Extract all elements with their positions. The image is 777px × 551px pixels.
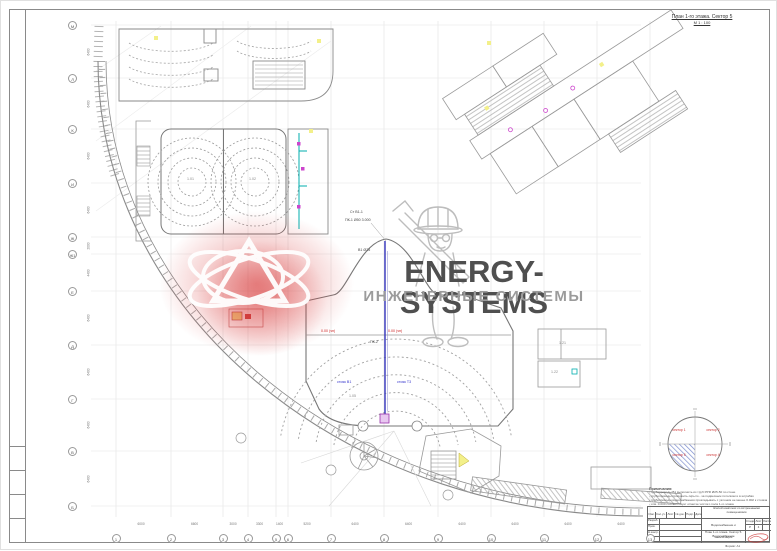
dim-label-bottom: 6400 bbox=[352, 522, 359, 526]
annotation-label: ПК-1 Ø50 3.000 bbox=[345, 218, 371, 222]
axis-bubble-left: Б bbox=[68, 502, 77, 511]
sheet-name: План 1-го этажа. Сектор 5. Водоснабжение bbox=[702, 531, 746, 543]
axis-bubble-bottom: 10 bbox=[487, 534, 496, 543]
sheet-scale: М 1 : 100 bbox=[637, 20, 767, 25]
dim-label-left: 6400 bbox=[87, 100, 91, 107]
axis-bubble-bottom: 7 bbox=[327, 534, 336, 543]
axis-bubble-bottom: 12 bbox=[593, 534, 602, 543]
dim-label-bottom: 6600 bbox=[191, 522, 198, 526]
dim-label-left: 6400 bbox=[87, 368, 91, 375]
dim-label-left: 6400 bbox=[87, 48, 91, 55]
axis-bubble-bottom: 8 bbox=[380, 534, 389, 543]
project-line2: помещениями bbox=[702, 511, 771, 515]
axis-bubble-bottom: 9 bbox=[434, 534, 443, 543]
dim-label-bottom: 6400 bbox=[512, 522, 519, 526]
dim-label-bottom: 6400 bbox=[565, 522, 572, 526]
axis-bubble-bottom: 6 bbox=[284, 534, 293, 543]
sector-label-5: сектор 5 bbox=[664, 453, 694, 457]
annotation-label: стояк В1 bbox=[337, 380, 351, 384]
axis-bubble-bottom: 13 bbox=[646, 534, 655, 543]
annotation-label: 1.02 bbox=[249, 177, 256, 181]
dim-label-bottom: 5200 bbox=[304, 522, 311, 526]
sector-label-1: сектор 1 bbox=[664, 428, 694, 432]
title-block-right: Жилой комплекс со встроенными помещениям… bbox=[702, 507, 771, 543]
red-stamp-icon bbox=[746, 532, 771, 544]
dim-label-bottom: 6400 bbox=[618, 522, 625, 526]
col-list: Лист bbox=[667, 512, 675, 518]
notes-block: Примечания: - трубопроводы В1 выполнить … bbox=[649, 487, 767, 506]
axis-bubble-left: Е bbox=[68, 287, 77, 296]
axis-bubble-left: В bbox=[68, 447, 77, 456]
col-ndok: № док. bbox=[675, 512, 686, 518]
annotation-label: 1.05 bbox=[349, 394, 356, 398]
col-data: Дата bbox=[695, 512, 702, 518]
col-podp: Подп. bbox=[686, 512, 695, 518]
axis-bubble-left: Ж bbox=[68, 233, 77, 242]
dim-label-left: 6400 bbox=[87, 475, 91, 482]
annotation-label: В1 Ø25 bbox=[358, 248, 370, 252]
axis-bubble-left: Ж1 bbox=[68, 250, 77, 259]
axis-bubble-bottom: 1 bbox=[112, 534, 121, 543]
sheet-name-line2: Водоснабжение bbox=[702, 535, 745, 539]
axis-bubble-bottom: 5 bbox=[272, 534, 281, 543]
axis-bubble-left: И bbox=[68, 179, 77, 188]
drawing-sheet: ENERGY-SYSTEMS ИНЖЕНЕРНЫЕ СИСТЕМЫ План 1… bbox=[0, 0, 777, 550]
dim-label-left: 6400 bbox=[87, 206, 91, 213]
sector-label-4: сектор 4 bbox=[698, 453, 728, 457]
annotation-label: 1.22 bbox=[551, 370, 558, 374]
watermark-subtitle: ИНЖЕНЕРНЫЕ СИСТЕМЫ bbox=[361, 289, 587, 304]
notes-list: - трубопроводы В1 выполнить из труб PPR … bbox=[649, 491, 767, 506]
sector-label-2: сектор 2 bbox=[698, 428, 728, 432]
title-block: Изм. Кол.уч. Лист № док. Подп. Дата Разр… bbox=[647, 506, 770, 542]
annotation-label: 1.01 bbox=[187, 177, 194, 181]
annotation-label: 0.00 (чп) bbox=[321, 329, 335, 333]
annotation-label: 0.00 (чп) bbox=[388, 329, 402, 333]
dim-label-bottom: 6400 bbox=[459, 522, 466, 526]
axis-bubble-left: Л bbox=[68, 74, 77, 83]
dim-label-bottom: 1400 bbox=[276, 522, 283, 526]
format-label: Формат А1 bbox=[725, 544, 740, 548]
axis-bubble-left: М bbox=[68, 21, 77, 30]
dim-label-left: 6400 bbox=[87, 314, 91, 321]
revision-grid: Изм. Кол.уч. Лист № док. Подп. Дата Разр… bbox=[648, 507, 702, 543]
dim-label-left: 4400 bbox=[87, 269, 91, 276]
dim-label-left: 6400 bbox=[87, 421, 91, 428]
project-name: Жилой комплекс со встроенными помещениям… bbox=[702, 507, 771, 519]
axis-bubble-left: Д bbox=[68, 341, 77, 350]
annotation-label: стояк Т3 bbox=[397, 380, 411, 384]
stage-table: Стадия Лист Листов Р 4 bbox=[746, 519, 771, 531]
dim-label-left: 6400 bbox=[87, 152, 91, 159]
sheet-header: План 1-го этажа. Сектор 5 М 1 : 100 bbox=[637, 14, 767, 25]
axis-bubble-bottom: 4 bbox=[244, 534, 253, 543]
dim-label-bottom: 6000 bbox=[138, 522, 145, 526]
dim-label-bottom: 3300 bbox=[256, 522, 263, 526]
axis-bubble-left: К bbox=[68, 125, 77, 134]
annotation-label: Ст В1-1 bbox=[350, 210, 363, 214]
annotation-label: ПК-2 bbox=[370, 340, 378, 344]
annotation-label: 1.21 bbox=[559, 341, 566, 345]
dim-label-bottom: 3000 bbox=[230, 522, 237, 526]
axis-bubble-bottom: 3 bbox=[219, 534, 228, 543]
axis-bubble-bottom: 2 bbox=[167, 534, 176, 543]
axis-bubble-left: Г bbox=[68, 395, 77, 404]
watermark-brand: ENERGY-SYSTEMS bbox=[351, 256, 597, 318]
stamp-cell bbox=[746, 531, 771, 543]
axis-bubble-bottom: 11 bbox=[540, 534, 549, 543]
dim-label-left: 2000 bbox=[87, 242, 91, 249]
dim-label-bottom: 6400 bbox=[405, 522, 412, 526]
